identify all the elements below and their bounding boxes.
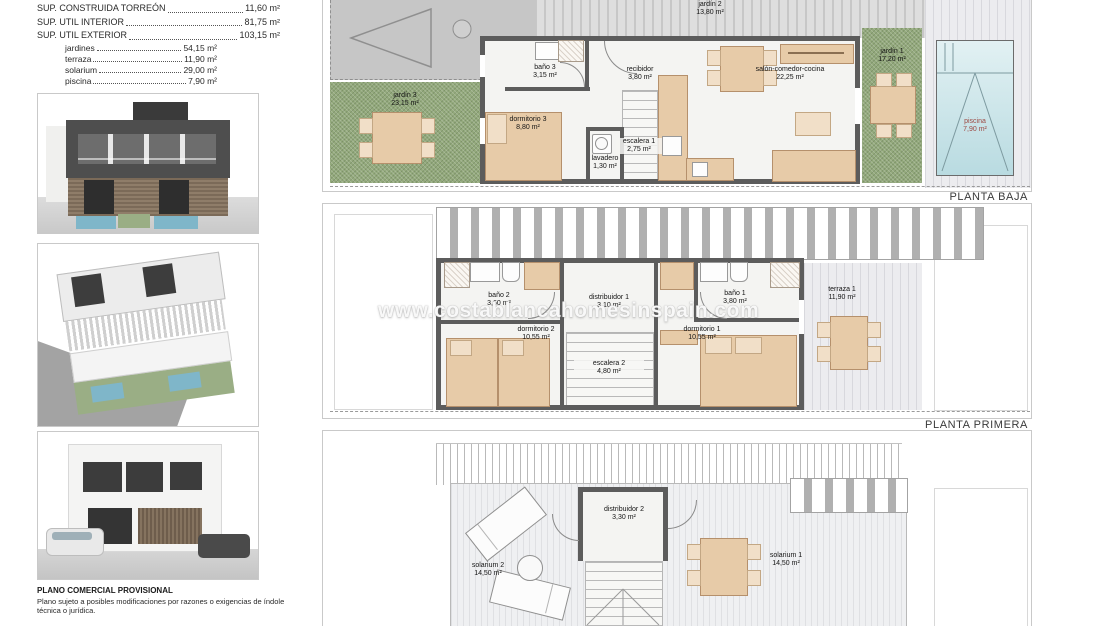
chair bbox=[359, 142, 373, 158]
summary-label: SUP. UTIL EXTERIOR bbox=[37, 29, 127, 43]
dotted-leader bbox=[126, 24, 242, 26]
chair bbox=[896, 73, 912, 87]
summary-subline: terraza 11,90 m² bbox=[65, 54, 217, 65]
room-label-solarium2: solarium 2 14,50 m² bbox=[450, 562, 526, 578]
footer-title: PLANO COMERCIAL PROVISIONAL bbox=[37, 586, 285, 596]
dotted-leader bbox=[129, 38, 237, 40]
chair bbox=[421, 142, 435, 158]
plan-label-planta-baja: PLANTA BAJA bbox=[860, 191, 1028, 203]
summary-label: SUP. UTIL INTERIOR bbox=[37, 16, 124, 30]
chair bbox=[867, 322, 881, 338]
wardrobe bbox=[524, 262, 560, 290]
bench-line bbox=[788, 52, 844, 54]
surface-summary: SUP. CONSTRUIDA TORREÓN 11,60 m² SUP. UT… bbox=[37, 2, 280, 87]
dotted-leader bbox=[93, 60, 182, 62]
render-corner-view bbox=[37, 431, 259, 580]
boundary-dashed-line bbox=[330, 186, 1030, 187]
chair bbox=[876, 73, 892, 87]
dotted-leader bbox=[93, 82, 186, 84]
summary-value: 103,15 m² bbox=[239, 29, 280, 43]
summary-value: 11,90 m² bbox=[184, 54, 217, 65]
dotted-leader bbox=[99, 71, 181, 73]
swimming-pool bbox=[936, 40, 1014, 176]
summary-label: piscina bbox=[65, 76, 91, 87]
plan-label-planta-primera: PLANTA PRIMERA bbox=[856, 419, 1028, 431]
wall-segment bbox=[586, 127, 590, 179]
room-label-piscina: piscina 7,90 m² bbox=[948, 118, 1002, 134]
lounger-line bbox=[545, 584, 553, 613]
room-label-terraza1: terraza 1 11,90 m² bbox=[810, 286, 874, 302]
wall-segment bbox=[585, 36, 589, 91]
render-front-elevation bbox=[37, 93, 259, 234]
stair-tower-interior bbox=[578, 487, 668, 561]
chair bbox=[896, 124, 912, 138]
summary-line: SUP. UTIL INTERIOR 81,75 m² bbox=[37, 16, 280, 30]
bathroom-sink bbox=[470, 262, 500, 282]
kitchen-sink bbox=[692, 162, 708, 177]
chair bbox=[747, 570, 761, 586]
chair bbox=[687, 544, 701, 560]
pillow bbox=[450, 340, 472, 356]
chair bbox=[707, 70, 721, 86]
summary-value: 29,00 m² bbox=[183, 65, 217, 76]
wall-segment bbox=[578, 487, 668, 492]
room-label-solarium1: solarium 1 14,50 m² bbox=[752, 552, 820, 568]
front-pool bbox=[154, 216, 198, 229]
terrace-table bbox=[830, 316, 868, 370]
solarium-pergola bbox=[790, 478, 908, 513]
boundary-dashed-line bbox=[330, 411, 1030, 412]
room-label-escalera1: escalera 1 2,75 m² bbox=[616, 138, 662, 154]
kitchen-tall-units bbox=[658, 75, 688, 181]
summary-label: SUP. CONSTRUIDA TORREÓN bbox=[37, 2, 166, 16]
cooktop bbox=[662, 136, 682, 156]
chair bbox=[707, 50, 721, 66]
white-car-windows bbox=[52, 532, 92, 540]
door-opening bbox=[855, 88, 860, 124]
wood-garage-wall bbox=[138, 508, 202, 544]
summary-subline: jardines 54,15 m² bbox=[65, 43, 217, 54]
chair bbox=[763, 50, 777, 66]
balcony-railing bbox=[78, 158, 216, 160]
chair bbox=[817, 322, 831, 338]
terrace-door-opening bbox=[799, 300, 804, 334]
wardrobe bbox=[660, 262, 694, 290]
chair bbox=[687, 570, 701, 586]
torreon-roof bbox=[71, 273, 105, 307]
lounger-line bbox=[477, 524, 497, 550]
toilet bbox=[730, 262, 748, 282]
wall-segment bbox=[654, 330, 658, 405]
room-label-jardin3: jardín 3 23,15 m² bbox=[368, 92, 442, 108]
render-aerial-view bbox=[37, 243, 259, 427]
summary-line: SUP. CONSTRUIDA TORREÓN 11,60 m² bbox=[37, 2, 280, 16]
wall-segment bbox=[480, 36, 860, 41]
footer-disclaimer: Plano sujeto a posibles modificaciones p… bbox=[37, 597, 285, 615]
glass-door bbox=[84, 180, 114, 214]
floor-plan-sheet: SUP. CONSTRUIDA TORREÓN 11,60 m² SUP. UT… bbox=[0, 0, 1110, 626]
room-label-jardin1: jardín 1 17,20 m² bbox=[866, 48, 918, 64]
chair bbox=[876, 124, 892, 138]
exterior-breakdown: jardines 54,15 m² terraza 11,90 m² solar… bbox=[65, 43, 217, 87]
room-label-dormitorio3: dormitorio 3 8,80 m² bbox=[492, 116, 564, 132]
garden-table bbox=[870, 86, 916, 124]
glass-door bbox=[159, 180, 189, 214]
front-grass bbox=[118, 214, 150, 228]
garden-table bbox=[372, 112, 422, 164]
dark-car bbox=[198, 534, 250, 558]
torreon-roof bbox=[142, 263, 176, 297]
room-label-dormitorio2: dormitorio 2 10,55 m² bbox=[496, 326, 576, 342]
room-label-jardin2: jardín 2 13,80 m² bbox=[668, 1, 752, 17]
shower bbox=[444, 262, 470, 288]
summary-value: 11,60 m² bbox=[245, 2, 280, 16]
summary-label: jardines bbox=[65, 43, 95, 54]
wall-segment bbox=[586, 127, 624, 131]
summary-subline: piscina 7,90 m² bbox=[65, 76, 217, 87]
room-label-escalera2: escalera 2 4,80 m² bbox=[574, 360, 644, 376]
pillow bbox=[502, 340, 524, 356]
summary-line: SUP. UTIL EXTERIOR 103,15 m² bbox=[37, 29, 280, 43]
sofa bbox=[772, 150, 856, 182]
room-label-dormitorio1: dormitorio 1 10,55 m² bbox=[662, 326, 742, 342]
summary-value: 54,15 m² bbox=[183, 43, 217, 54]
dotted-leader bbox=[168, 11, 244, 13]
chair bbox=[867, 346, 881, 362]
front-pool bbox=[76, 216, 116, 229]
watermark: www.costablancahomesinspain.com bbox=[378, 299, 790, 323]
window-mullion bbox=[122, 462, 126, 492]
bathroom-sink bbox=[700, 262, 728, 282]
pool-lines bbox=[937, 41, 1013, 175]
shower bbox=[558, 40, 584, 62]
room-label-bano3: baño 3 3,15 m² bbox=[516, 64, 574, 80]
room-label-recibidor: recibidor 3,80 m² bbox=[598, 66, 682, 82]
stair-direction-lines bbox=[585, 561, 661, 626]
summary-label: solarium bbox=[65, 65, 97, 76]
wall-segment bbox=[505, 87, 590, 91]
bathroom-sink bbox=[535, 42, 559, 60]
summary-value: 7,90 m² bbox=[188, 76, 217, 87]
chair bbox=[421, 118, 435, 134]
solarium-table bbox=[700, 538, 748, 596]
neighbor-plot-outline bbox=[934, 488, 1028, 626]
shower bbox=[770, 262, 800, 288]
coffee-table bbox=[795, 112, 831, 136]
window-opening bbox=[480, 55, 485, 77]
pergola-strip bbox=[436, 207, 984, 260]
building-top-view bbox=[57, 251, 244, 421]
plan-footer: PLANO COMERCIAL PROVISIONAL Plano sujeto… bbox=[37, 586, 285, 615]
upper-window bbox=[170, 462, 202, 490]
washing-machine-drum bbox=[595, 137, 608, 150]
chair bbox=[359, 118, 373, 134]
wall-segment bbox=[436, 258, 441, 410]
toilet bbox=[502, 262, 520, 282]
summary-subline: solarium 29,00 m² bbox=[65, 65, 217, 76]
dotted-leader bbox=[97, 49, 182, 51]
room-label-salon: salón-comedor-cocina 22,25 m² bbox=[738, 66, 842, 82]
kitchen-bench bbox=[780, 44, 854, 64]
room-label-lavadero: lavadero 1,30 m² bbox=[585, 155, 625, 171]
summary-label: terraza bbox=[65, 54, 91, 65]
staircase bbox=[622, 90, 658, 181]
chair bbox=[817, 346, 831, 362]
room-label-distribuidor2: distribuidor 2 3,30 m² bbox=[586, 506, 662, 522]
summary-value: 81,75 m² bbox=[244, 16, 280, 30]
